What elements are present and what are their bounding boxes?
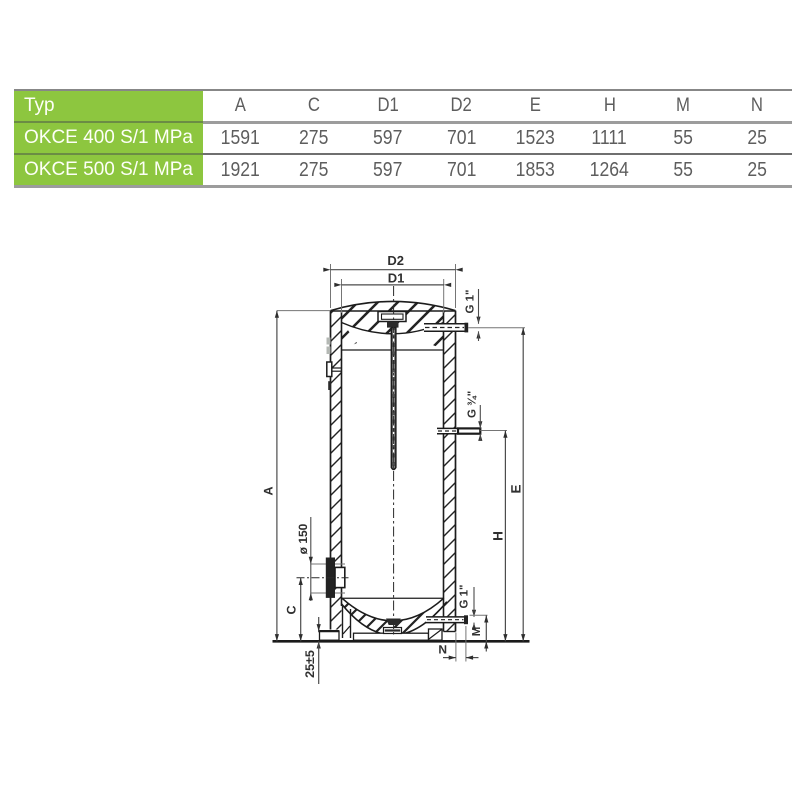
svg-text:C: C	[284, 605, 298, 614]
svg-text:M: M	[471, 627, 483, 637]
svg-text:H: H	[491, 531, 506, 541]
svg-text:N: N	[438, 643, 447, 657]
svg-text:G 1": G 1"	[464, 290, 476, 314]
svg-text:G 1": G 1"	[458, 585, 470, 609]
svg-text:D2: D2	[387, 253, 404, 268]
svg-text:25±5: 25±5	[303, 650, 317, 678]
svg-text:E: E	[508, 484, 523, 493]
svg-text:D1: D1	[388, 270, 405, 285]
svg-text:G ¾": G ¾"	[467, 391, 479, 418]
svg-text:ø 150: ø 150	[296, 523, 310, 554]
svg-text:A: A	[262, 486, 276, 495]
